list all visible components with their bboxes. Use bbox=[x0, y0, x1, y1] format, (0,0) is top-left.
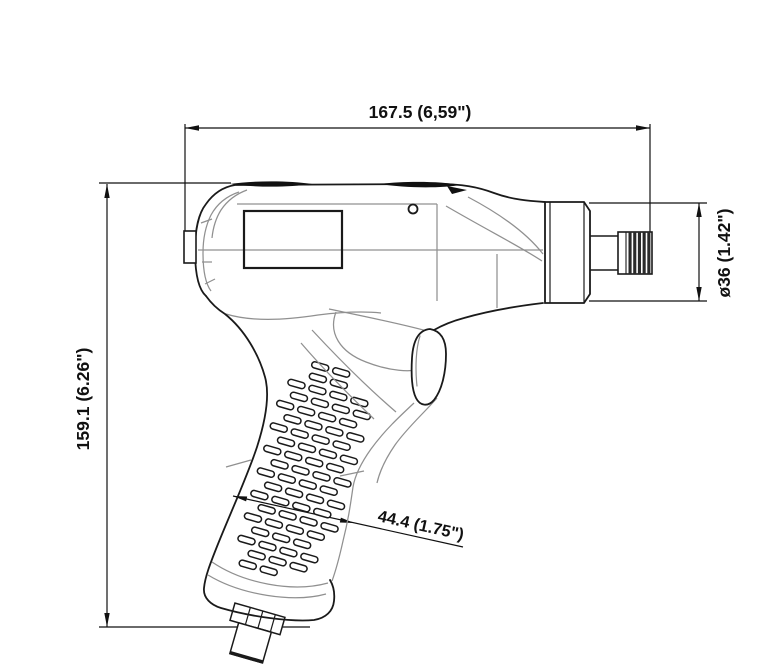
dimension-drawing-page: 167.5 (6,59") 159.1 (6.26") ø36 (1.42") … bbox=[0, 0, 760, 669]
dim-overall-length-label: 167.5 (6,59") bbox=[369, 102, 472, 122]
display-window bbox=[244, 211, 342, 268]
output-spindle bbox=[618, 232, 652, 274]
dim-spindle-diameter-label: ø36 (1.42") bbox=[714, 208, 734, 297]
top-seams bbox=[230, 181, 467, 194]
tool-dimension-drawing: 167.5 (6,59") 159.1 (6.26") ø36 (1.42") … bbox=[0, 0, 760, 669]
dim-overall-height-label: 159.1 (6.26") bbox=[73, 348, 93, 451]
indicator-led bbox=[409, 205, 418, 214]
dimension-lines bbox=[99, 124, 707, 627]
dim-grip-width-label: 44.4 (1.75") bbox=[376, 507, 465, 544]
rear-latch bbox=[184, 231, 196, 263]
front-collar bbox=[545, 202, 618, 303]
dimension-arrows bbox=[104, 125, 701, 627]
trigger bbox=[412, 329, 446, 405]
air-inlet-assembly bbox=[221, 603, 285, 665]
